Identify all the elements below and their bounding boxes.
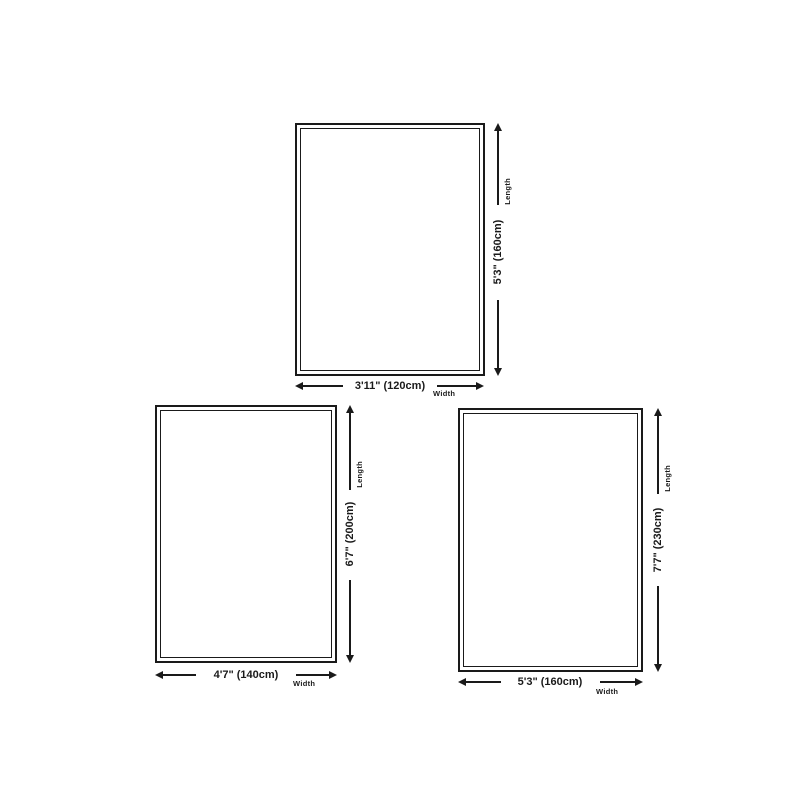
rug-size-chart: Length 5'3" (160cm) 3'11" (120cm) Width … [0,0,800,800]
width-value: 4'7" (140cm) [209,669,284,681]
length-value: 6'7" (200cm) [344,497,356,572]
arrow-right-icon [329,671,337,679]
length-line-lower [497,300,499,370]
width-caption: Width [293,679,315,688]
length-caption: Length [503,178,512,205]
rug-rectangle [295,123,485,376]
width-line-left [162,674,196,676]
arrow-down-icon [654,664,662,672]
rug-rectangle [155,405,337,663]
rug-inner-border [300,128,480,371]
width-line-left [465,681,501,683]
arrow-right-icon [476,382,484,390]
width-line-right [296,674,330,676]
width-caption: Width [596,687,618,696]
length-line-upper [349,412,351,490]
width-line-left [302,385,343,387]
length-line-lower [657,586,659,664]
length-value: 7'7" (230cm) [652,503,664,578]
rug-rectangle [458,408,643,672]
width-caption: Width [433,389,455,398]
arrow-right-icon [635,678,643,686]
width-line-right [600,681,636,683]
width-value: 5'3" (160cm) [513,676,588,688]
arrow-down-icon [494,368,502,376]
rug-inner-border [463,413,638,667]
length-line-lower [349,580,351,656]
length-value: 5'3" (160cm) [492,215,504,290]
length-line-upper [497,130,499,205]
length-line-upper [657,415,659,494]
width-value: 3'11" (120cm) [350,380,430,392]
length-caption: Length [355,461,364,488]
arrow-down-icon [346,655,354,663]
length-caption: Length [663,465,672,492]
width-line-right [437,385,477,387]
rug-inner-border [160,410,332,658]
